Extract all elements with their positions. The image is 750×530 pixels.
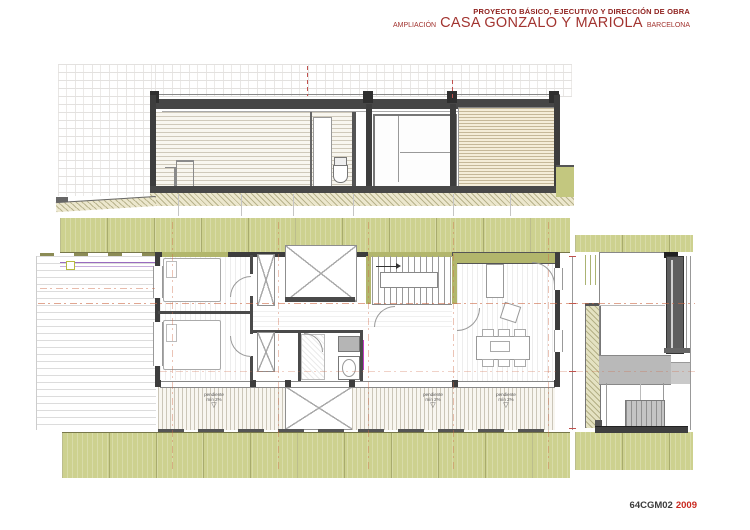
project-prefix: AMPLIACIÓN: [393, 22, 436, 29]
slope-label: pendiente mín 2% ▽: [192, 392, 236, 409]
chair: [498, 329, 510, 337]
axis-horizontal-secondary: [160, 371, 695, 372]
detail-post-line: [606, 383, 607, 426]
column-tick: [241, 194, 242, 216]
detail-stud-dashes: [585, 255, 599, 285]
column-tick: [453, 194, 454, 216]
section-chair-sketch: [165, 167, 176, 186]
void-crossed-box: [285, 245, 357, 302]
section-floor-slab: [150, 186, 560, 193]
axis-vertical: [368, 222, 369, 472]
desk: [486, 264, 504, 298]
detail-outer-line: [686, 256, 687, 352]
axis-vertical: [548, 222, 549, 472]
wc-bowl: [342, 359, 356, 377]
dimension-tick: [569, 428, 576, 429]
slope-triangle-icon: ▽: [484, 402, 528, 409]
axis-dash-vertical: [452, 80, 453, 98]
wall-south-glazing: [160, 381, 555, 388]
slope-label: pendiente mín 2% ▽: [411, 392, 455, 409]
detail-base-band: [595, 426, 688, 433]
axis-vertical: [278, 222, 279, 472]
chair: [498, 359, 510, 367]
sheet-code: 64CGM02: [630, 500, 673, 511]
table-object: [490, 341, 510, 352]
window-west: [153, 266, 163, 298]
detail-window-frame: [666, 256, 684, 354]
south-post: [250, 380, 256, 387]
slope-triangle-icon: ▽: [411, 402, 455, 409]
stair-landing: [380, 272, 438, 288]
deck-marker: [66, 261, 75, 270]
section-partition-line: [310, 112, 312, 192]
corridor-floor: [253, 311, 452, 330]
window-east: [554, 268, 563, 290]
section-window-unit: [373, 114, 457, 188]
garden-band-bottom: [62, 432, 570, 478]
detail-outer-line: [690, 256, 691, 430]
chair: [482, 329, 494, 337]
toilet-bowl: [333, 165, 348, 183]
column-tick: [293, 194, 294, 216]
closet: [257, 332, 275, 372]
window-east: [554, 330, 563, 352]
axis-vertical: [453, 222, 454, 472]
column-tick: [510, 194, 511, 216]
detail-sill: [664, 348, 690, 353]
column-tick: [178, 194, 179, 216]
detail-top-line: [599, 252, 665, 253]
detail-dimension-line: [572, 256, 573, 430]
roof-top-line: [150, 94, 560, 95]
project-name: CASA GONZALO Y MARIOLA: [440, 15, 643, 31]
south-post: [349, 380, 355, 387]
south-post: [285, 380, 291, 387]
section-post: [366, 104, 372, 192]
slope-label: pendiente mín 2% ▽: [484, 392, 528, 409]
ground-step-left: [56, 197, 68, 202]
chair: [482, 359, 494, 367]
sink: [338, 336, 360, 352]
sheet-title-line2: AMPLIACIÓN CASA GONZALO Y MARIOLA BARCEL…: [393, 15, 690, 31]
window-transom: [400, 152, 452, 153]
sheet-year: 2009: [676, 500, 697, 511]
roof-parapet: [363, 91, 373, 103]
porch-edge-ticks: [158, 429, 555, 432]
magenta-mark: [363, 340, 364, 370]
south-post: [155, 380, 161, 387]
section-post: [150, 95, 156, 192]
chair: [514, 359, 526, 367]
detail-slab: [599, 355, 671, 385]
wall-north-living: [452, 252, 560, 264]
detail-frame-glass-line: [671, 260, 673, 348]
void-south-wall: [285, 297, 355, 302]
axis-horizontal-deck: [40, 288, 155, 289]
brick-hatch-wall-left: [58, 64, 155, 196]
window-west: [153, 322, 163, 366]
door-arc: [374, 306, 395, 327]
section-louver-bay: [458, 107, 556, 187]
slope-triangle-icon: ▽: [192, 402, 236, 409]
porch-crossed-deck: [285, 386, 353, 430]
detail-mid-rail: [599, 305, 665, 306]
drawing-sheet: PROYECTO BÁSICO, EJECUTIVO Y DIRECCIÓN D…: [0, 0, 750, 530]
stair-direction-arrow: [396, 263, 401, 269]
ground-slope-left: [56, 196, 156, 212]
section-table-sketch: [176, 160, 194, 186]
project-location: BARCELONA: [647, 22, 690, 29]
detail-ribbed-box: [625, 400, 665, 428]
sheet-code-block: 64CGM02 2009: [630, 500, 697, 511]
deck: [36, 256, 156, 430]
section-door-leaf: [313, 117, 332, 188]
stair-direction-line: [376, 266, 396, 267]
axis-dash-vertical: [307, 66, 308, 96]
detail-garden-band-bottom: [575, 432, 693, 470]
detail-garden-band-top: [575, 235, 693, 252]
planter-right: [556, 165, 574, 197]
window-mullion: [398, 116, 399, 182]
chair: [514, 329, 526, 337]
dimension-tick: [569, 256, 576, 257]
closet: [257, 254, 275, 306]
column-tick: [353, 194, 354, 216]
section-post: [450, 104, 456, 192]
detail-slab-step: [671, 362, 690, 384]
axis-vertical: [172, 222, 173, 472]
south-post: [554, 380, 560, 387]
axis-horizontal-main: [38, 303, 695, 304]
